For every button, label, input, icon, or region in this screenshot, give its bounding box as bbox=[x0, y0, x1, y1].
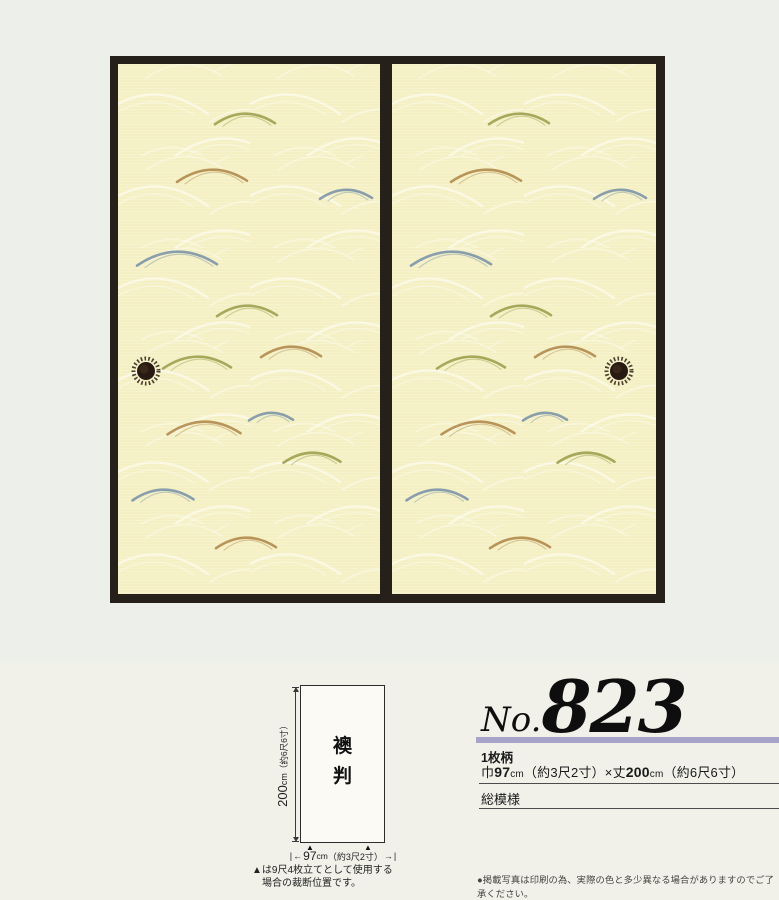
cutting-note-line2: 場合の裁断位置です。 bbox=[252, 877, 393, 890]
color-disclaimer-footnote: ●掲載写真は印刷の為、実際の色と多少異なる場合がありますのでご了承ください。 bbox=[477, 872, 779, 900]
fusuma-size-char-1: 襖 bbox=[301, 732, 384, 762]
size-spec-part: cm bbox=[510, 769, 524, 780]
product-number-value: 823 bbox=[541, 676, 685, 738]
size-spec-part: 巾 bbox=[481, 765, 494, 780]
fusuma-panel-left bbox=[118, 64, 380, 594]
cutting-note-line1: ▲は9尺4枚立てとして使用する bbox=[252, 864, 393, 877]
fusuma-size-label: 襖 判 bbox=[301, 732, 384, 792]
height-dimension-arrow-down bbox=[293, 837, 299, 842]
size-spec-part: 97 bbox=[494, 764, 510, 780]
accent-bar bbox=[476, 737, 779, 743]
size-spec-part: 200 bbox=[626, 764, 650, 780]
size-spec-part: （約6尺6寸） bbox=[663, 765, 744, 780]
size-diagram-rectangle: 襖 判 bbox=[300, 685, 385, 843]
height-dimension-line bbox=[295, 688, 296, 840]
height-dimension-label: 200cm（約6尺6寸） bbox=[274, 689, 292, 839]
catalog-page: 襖 判 200cm（約6尺6寸） ▲ ▲ |←97cm（約3尺2寸）→| ▲は9… bbox=[0, 0, 779, 900]
size-spec-part: cm bbox=[650, 769, 664, 780]
pattern-style-label: 総模様 bbox=[481, 789, 520, 808]
product-number: No.823 bbox=[481, 670, 686, 738]
arrow-right-icon: → bbox=[384, 851, 393, 861]
width-dimension-label: |←97cm（約3尺2寸）→| bbox=[275, 849, 411, 863]
size-spec-line: 巾97cm（約3尺2寸）×丈200cm（約6尺6寸） bbox=[481, 762, 744, 781]
divider-rule-1 bbox=[479, 783, 779, 784]
product-number-prefix: No. bbox=[481, 703, 541, 738]
divider-rule-2 bbox=[479, 808, 779, 809]
fusuma-pair-photo bbox=[110, 56, 665, 603]
fusuma-panel-right bbox=[392, 64, 656, 594]
arrow-left-icon: ← bbox=[293, 851, 302, 861]
fusuma-size-char-2: 判 bbox=[301, 762, 384, 792]
height-dimension-arrow-up bbox=[293, 687, 299, 692]
size-spec-part: （約3尺2寸）×丈 bbox=[524, 765, 626, 780]
cutting-note: ▲は9尺4枚立てとして使用する 場合の裁断位置です。 bbox=[252, 864, 393, 890]
